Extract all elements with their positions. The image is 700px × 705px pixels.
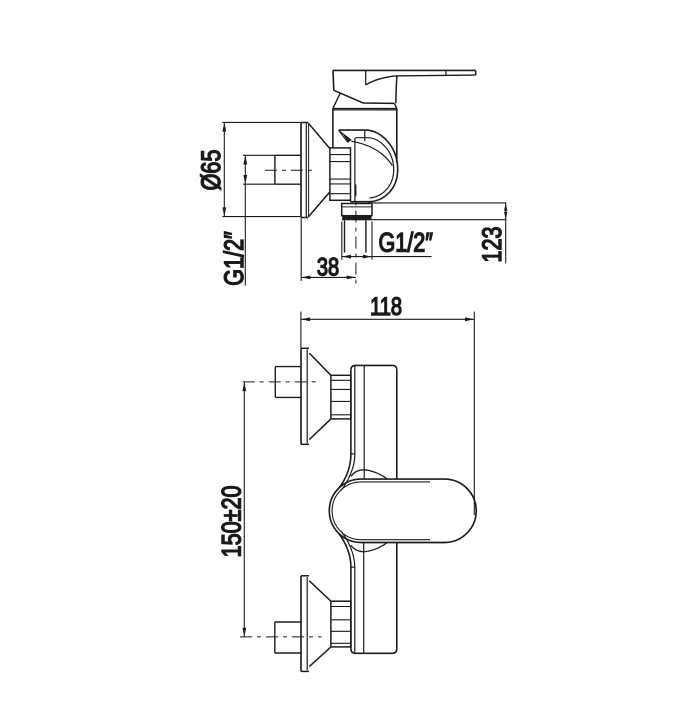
svg-text:Ø65: Ø65: [197, 150, 227, 191]
svg-text:G1/2″: G1/2″: [379, 228, 434, 258]
svg-text:150±20: 150±20: [217, 485, 247, 557]
svg-text:123: 123: [478, 226, 508, 262]
svg-text:G1/2″: G1/2″: [220, 231, 250, 286]
svg-text:38: 38: [317, 253, 339, 281]
svg-text:118: 118: [370, 293, 402, 321]
